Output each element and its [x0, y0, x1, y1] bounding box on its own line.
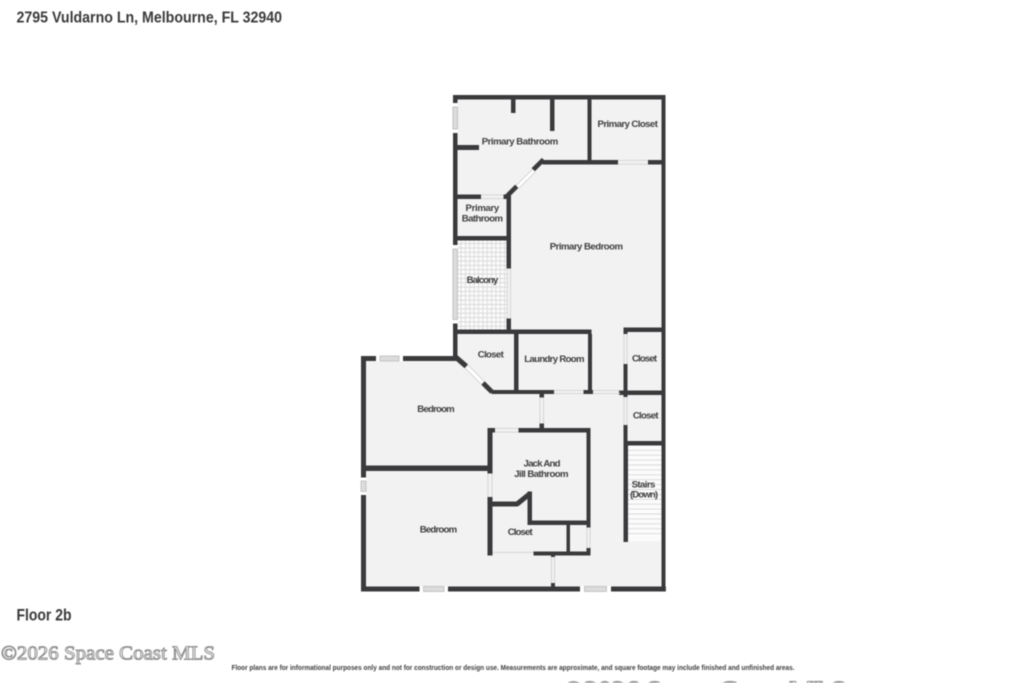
svg-text:©2026 Space Coast MLS: ©2026 Space Coast MLS — [563, 676, 846, 683]
svg-text:Bathroom: Bathroom — [462, 214, 503, 225]
svg-text:Closet: Closet — [632, 354, 658, 365]
svg-text:Primary Bathroom: Primary Bathroom — [482, 137, 559, 148]
svg-text:Closet: Closet — [508, 527, 534, 538]
svg-text:Floor plans are for informatio: Floor plans are for informational purpos… — [232, 665, 795, 672]
svg-text:Closet: Closet — [633, 410, 659, 421]
svg-text:Closet: Closet — [478, 350, 505, 361]
svg-text:Floor 2b: Floor 2b — [17, 607, 72, 625]
svg-text:Primary: Primary — [466, 203, 500, 214]
svg-text:Balcony: Balcony — [467, 275, 499, 286]
svg-text:Bedroom: Bedroom — [420, 525, 457, 536]
svg-text:(Down): (Down) — [630, 490, 658, 501]
svg-text:Bedroom: Bedroom — [417, 404, 454, 415]
svg-text:Jill Bathroom: Jill Bathroom — [514, 469, 568, 480]
svg-text:2795 Vuldarno Ln, Melbourne, F: 2795 Vuldarno Ln, Melbourne, FL 32940 — [17, 10, 283, 27]
svg-text:Primary Bedroom: Primary Bedroom — [550, 242, 623, 253]
svg-text:©2026 Space Coast MLS: ©2026 Space Coast MLS — [1, 643, 215, 665]
svg-text:Primary Closet: Primary Closet — [598, 119, 659, 130]
svg-text:Laundry Room: Laundry Room — [524, 354, 584, 365]
